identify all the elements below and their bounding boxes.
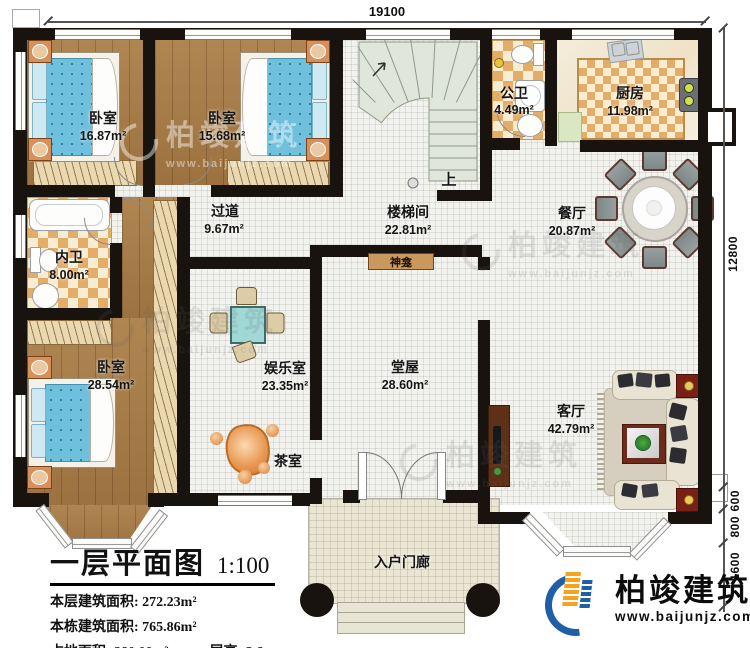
wall-bottom-right-a bbox=[478, 512, 530, 524]
room-label-bedroom2: 卧室 bbox=[208, 108, 236, 128]
wall-bottom-right-b bbox=[668, 512, 712, 524]
room-label-public-bath: 公卫 bbox=[500, 83, 528, 103]
room-label-tea: 茶室 bbox=[274, 451, 302, 471]
toilet-tank bbox=[533, 43, 544, 66]
sofa-pillow bbox=[654, 373, 670, 387]
stove-burner bbox=[684, 83, 694, 93]
window-pbath-left bbox=[15, 215, 26, 258]
shrine-label: 神龛 bbox=[390, 254, 412, 270]
cabinet-knob bbox=[684, 381, 694, 391]
plan-scale: 1:100 bbox=[217, 553, 269, 579]
sofa-pillow bbox=[670, 425, 688, 443]
room-label-corridor: 过道 bbox=[211, 201, 239, 221]
window-master-left bbox=[15, 395, 26, 457]
bed1-pillow bbox=[32, 102, 47, 142]
kitchen-sink-basin bbox=[611, 42, 626, 57]
wall-bed1-bottom bbox=[27, 185, 115, 197]
plan-title: 一层平面图 bbox=[50, 540, 205, 582]
company-name: 柏竣建筑 bbox=[615, 575, 750, 606]
wall-stair-bath bbox=[480, 28, 492, 190]
tv-screen bbox=[493, 426, 501, 464]
building-area-label: 本栋建筑面积: bbox=[50, 620, 139, 635]
bed2-nightstand bbox=[306, 40, 330, 63]
wall-bath-kitchen bbox=[545, 40, 557, 146]
wall-bath-bottom bbox=[492, 138, 520, 150]
bed3-nightstand bbox=[27, 356, 52, 379]
room-area-dining: 20.87m² bbox=[549, 224, 596, 238]
porch-column bbox=[466, 583, 500, 617]
sofa-pillow bbox=[669, 447, 687, 464]
room-label-bedroom1: 卧室 bbox=[89, 108, 117, 128]
door-leaf-right bbox=[437, 452, 446, 500]
sofa-pillow bbox=[617, 373, 634, 388]
wall-kitchen-bottom bbox=[580, 140, 698, 152]
dim-800-value: 800 bbox=[728, 516, 742, 538]
bed2-pillow bbox=[312, 60, 327, 100]
dim-line-right bbox=[723, 28, 725, 612]
bed2-pillow bbox=[312, 102, 327, 142]
floor-plan: 神龛 柏竣建筑 www.baijunjz.com 柏竣建筑 www.baijun… bbox=[0, 0, 750, 648]
room-label-private-bath: 内卫 bbox=[55, 247, 83, 267]
master-wardrobe-side bbox=[153, 200, 179, 505]
room-label-hall: 堂屋 bbox=[391, 357, 419, 377]
game-table bbox=[230, 306, 266, 344]
wall-pbath-bottom bbox=[27, 308, 110, 320]
window-bed1-left bbox=[15, 52, 26, 130]
wall-living-left-stub bbox=[478, 257, 490, 270]
window-stair-top bbox=[366, 29, 450, 40]
company-logo: 柏竣建筑 www.baijunjz.com bbox=[545, 568, 750, 630]
tea-stone-pebble bbox=[258, 462, 270, 474]
room-area-living: 42.79m² bbox=[548, 422, 595, 436]
dining-table-center bbox=[646, 200, 662, 216]
company-url: www.baijunjz.com bbox=[615, 609, 750, 624]
dining-chair bbox=[595, 196, 618, 221]
wall-bed2-bottom bbox=[211, 185, 330, 197]
room-area-hall: 28.60m² bbox=[382, 378, 429, 392]
room-area-master-bedroom: 28.54m² bbox=[88, 378, 135, 392]
shrine-cabinet: 神龛 bbox=[368, 253, 434, 270]
wall-right bbox=[698, 28, 712, 524]
room-area-public-bath: 4.49m² bbox=[494, 103, 534, 117]
sofa-pillow bbox=[621, 483, 638, 498]
company-logo-text: 柏竣建筑 www.baijunjz.com bbox=[615, 575, 750, 624]
stove-burner bbox=[684, 96, 694, 106]
room-label-entertainment: 娱乐室 bbox=[264, 358, 306, 378]
wall-bed2-stair bbox=[330, 40, 343, 197]
wall-ent-hall-b bbox=[310, 478, 322, 504]
footprint-line: 占地面积: 280.00m² 层高: 3.6m bbox=[50, 641, 275, 648]
plan-title-row: 一层平面图 1:100 bbox=[50, 540, 275, 586]
room-label-porch: 入户门廊 bbox=[374, 552, 430, 572]
room-label-kitchen: 厨房 bbox=[616, 83, 644, 103]
window-tea-bottom bbox=[218, 495, 292, 506]
kitchen-sink-basin bbox=[625, 41, 640, 56]
tea-stone-pebble bbox=[266, 424, 279, 437]
room-area-entertainment: 23.35m² bbox=[262, 379, 309, 393]
floor-area-label: 本层建筑面积: bbox=[50, 595, 139, 610]
sink bbox=[32, 283, 59, 309]
stair-up-label: 上 bbox=[441, 169, 456, 190]
wall-ent-top bbox=[190, 257, 310, 269]
toilet-bowl bbox=[511, 45, 534, 64]
company-logo-icon bbox=[545, 568, 605, 630]
bay-window-living-center bbox=[563, 546, 631, 557]
dim-600-value: 600 bbox=[728, 490, 742, 512]
master-wardrobe-top bbox=[27, 320, 112, 345]
sofa-pillow bbox=[635, 372, 652, 388]
game-chair bbox=[267, 313, 285, 334]
floor-area-value: 272.23m² bbox=[142, 595, 196, 610]
porch-step bbox=[337, 622, 465, 634]
dim-ext-box bbox=[12, 9, 40, 28]
kitchen-mat bbox=[558, 112, 582, 142]
bed3-pillow bbox=[31, 388, 46, 422]
window-bed2-top bbox=[185, 29, 291, 40]
tea-stone-pebble bbox=[210, 432, 223, 445]
dining-chair bbox=[642, 246, 667, 269]
window-kitchen-top bbox=[572, 29, 674, 40]
room-area-bedroom1: 16.87m² bbox=[80, 129, 127, 143]
plant bbox=[636, 436, 650, 450]
room-label-stairwell: 楼梯间 bbox=[387, 202, 429, 222]
cabinet-knob bbox=[684, 495, 694, 505]
dim-line-top bbox=[48, 21, 706, 23]
bed3-nightstand bbox=[27, 466, 52, 489]
bed3-blanket bbox=[90, 384, 114, 462]
stair-body bbox=[343, 36, 483, 188]
window-bed1-top bbox=[55, 29, 140, 40]
sofa-pillow bbox=[641, 483, 658, 498]
bedroom2-wardrobe bbox=[227, 160, 329, 186]
room-label-master-bedroom: 卧室 bbox=[97, 357, 125, 377]
game-chair bbox=[236, 287, 257, 305]
tea-stone-pebble bbox=[238, 470, 252, 484]
bed3-pillow bbox=[31, 424, 46, 458]
wall-stair-landing bbox=[437, 190, 492, 201]
room-area-stairwell: 22.81m² bbox=[385, 223, 432, 237]
room-area-kitchen: 11.98m² bbox=[607, 104, 653, 118]
game-chair bbox=[210, 313, 228, 334]
building-area-line: 本栋建筑面积: 765.86m² bbox=[50, 616, 275, 636]
wall-bed-divider-stub bbox=[143, 185, 155, 197]
wall-ent-hall-a bbox=[310, 245, 322, 440]
bed1-pillow bbox=[32, 60, 47, 100]
dim-right-value: 12800 bbox=[726, 236, 740, 272]
bed1-nightstand bbox=[28, 138, 52, 161]
window-bath-top bbox=[492, 29, 540, 40]
bed1-nightstand bbox=[28, 40, 52, 63]
curved-staircase bbox=[343, 36, 483, 194]
floor-area-line: 本层建筑面积: 272.23m² bbox=[50, 591, 275, 611]
plant-small bbox=[494, 468, 501, 475]
wall-pbath-right-stub bbox=[110, 197, 122, 213]
bed2-blanket bbox=[242, 58, 268, 156]
dim-top-value: 19100 bbox=[352, 4, 422, 19]
wall-niche bbox=[704, 108, 736, 146]
wall-hall-bottom-b bbox=[443, 490, 478, 503]
rug-fringe bbox=[597, 392, 604, 490]
wall-ent-left bbox=[177, 197, 190, 504]
room-area-bedroom2: 15.68m² bbox=[199, 129, 246, 143]
wall-pbath-right bbox=[110, 243, 122, 318]
wall-bed1-bed2 bbox=[143, 40, 155, 185]
building-area-value: 765.86m² bbox=[142, 620, 196, 635]
room-label-dining: 餐厅 bbox=[558, 203, 586, 223]
title-block: 一层平面图 1:100 本层建筑面积: 272.23m² 本栋建筑面积: 765… bbox=[50, 540, 275, 648]
room-area-corridor: 9.67m² bbox=[204, 222, 244, 236]
room-area-private-bath: 8.00m² bbox=[49, 268, 89, 282]
bed2-nightstand bbox=[306, 138, 330, 161]
porch-column bbox=[300, 583, 334, 617]
room-label-living: 客厅 bbox=[557, 401, 585, 421]
light-fixture bbox=[494, 58, 504, 68]
